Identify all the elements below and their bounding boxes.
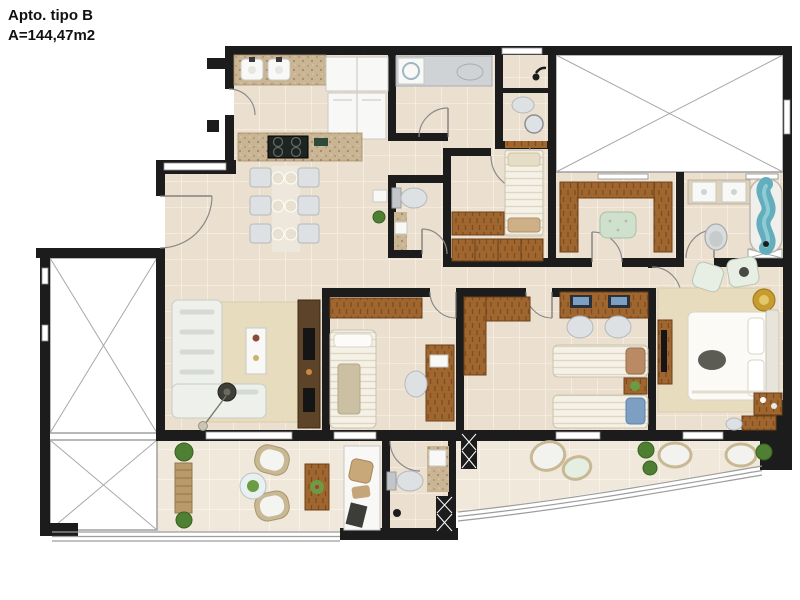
foyer-window bbox=[164, 163, 226, 170]
tv-rack bbox=[298, 300, 320, 428]
small-wc-toilet bbox=[401, 188, 427, 208]
twin-bedroom-window bbox=[556, 432, 600, 439]
small-wc-sink bbox=[395, 222, 407, 234]
structural-column-1 bbox=[461, 433, 477, 469]
bed-throw bbox=[698, 350, 726, 370]
bedroom1-chair bbox=[405, 371, 427, 397]
kitchen-sink-2 bbox=[268, 57, 290, 80]
maid-bed bbox=[505, 150, 543, 236]
balcony-plant-1 bbox=[175, 443, 193, 461]
coffee-table bbox=[246, 328, 266, 374]
balcony-plant-2 bbox=[176, 512, 192, 528]
round-table bbox=[240, 473, 266, 499]
lounge-pouf-4 bbox=[726, 444, 756, 466]
bath2-toilet bbox=[397, 471, 423, 491]
floor-plan-page: Apto. tipo B A=144,47m2 bbox=[0, 0, 800, 600]
living-room bbox=[172, 300, 320, 431]
laundry bbox=[396, 56, 492, 86]
twin-bed-1 bbox=[553, 345, 648, 377]
hall-plant bbox=[373, 211, 385, 223]
vanity-stool bbox=[726, 418, 742, 430]
washing-machine bbox=[398, 58, 424, 84]
laundry-sink bbox=[457, 64, 483, 80]
structural-column-2 bbox=[436, 496, 453, 532]
office-nook bbox=[344, 446, 380, 530]
bedroom1-wardrobe bbox=[330, 298, 422, 318]
towel-hook bbox=[393, 509, 401, 517]
maid-shelf bbox=[505, 141, 547, 148]
master-window bbox=[683, 432, 723, 439]
floor-plan-drawing bbox=[0, 0, 800, 600]
living-sliding-door bbox=[206, 432, 292, 439]
master-nightstand bbox=[754, 393, 782, 415]
twin-wardrobe-side bbox=[464, 297, 486, 375]
maid-dresser bbox=[452, 212, 504, 235]
bath-toilet bbox=[705, 224, 727, 250]
void-left-lower bbox=[50, 440, 157, 530]
office-chair bbox=[348, 458, 374, 484]
service-wc-sink bbox=[512, 97, 534, 113]
lounge-pouf-3 bbox=[659, 443, 691, 467]
wood-table bbox=[305, 464, 329, 510]
cutting-board bbox=[314, 138, 328, 146]
wall-picture bbox=[373, 190, 387, 202]
master-bed bbox=[688, 310, 779, 402]
bath-top-window bbox=[746, 174, 778, 179]
kitchen-island bbox=[238, 133, 362, 161]
master-vanity bbox=[742, 416, 776, 430]
bath2-sink bbox=[429, 450, 446, 466]
jacuzzi bbox=[750, 179, 782, 253]
kitchen-sink bbox=[241, 57, 263, 80]
service-wc-toilet bbox=[525, 115, 543, 133]
closet-ottoman bbox=[600, 212, 636, 238]
kitchen-cabinets bbox=[326, 57, 388, 139]
bedroom1-bed bbox=[330, 330, 376, 428]
void-left-upper bbox=[50, 258, 157, 433]
closet-top-window bbox=[598, 174, 648, 179]
bedroom1-window bbox=[334, 432, 376, 439]
dining-set bbox=[250, 166, 319, 252]
void-top-right bbox=[556, 55, 783, 172]
service-wc-window bbox=[502, 48, 542, 54]
balcony-floor-right bbox=[456, 441, 762, 512]
master-tv-rack bbox=[658, 320, 672, 384]
twin-bed-2 bbox=[553, 395, 648, 428]
